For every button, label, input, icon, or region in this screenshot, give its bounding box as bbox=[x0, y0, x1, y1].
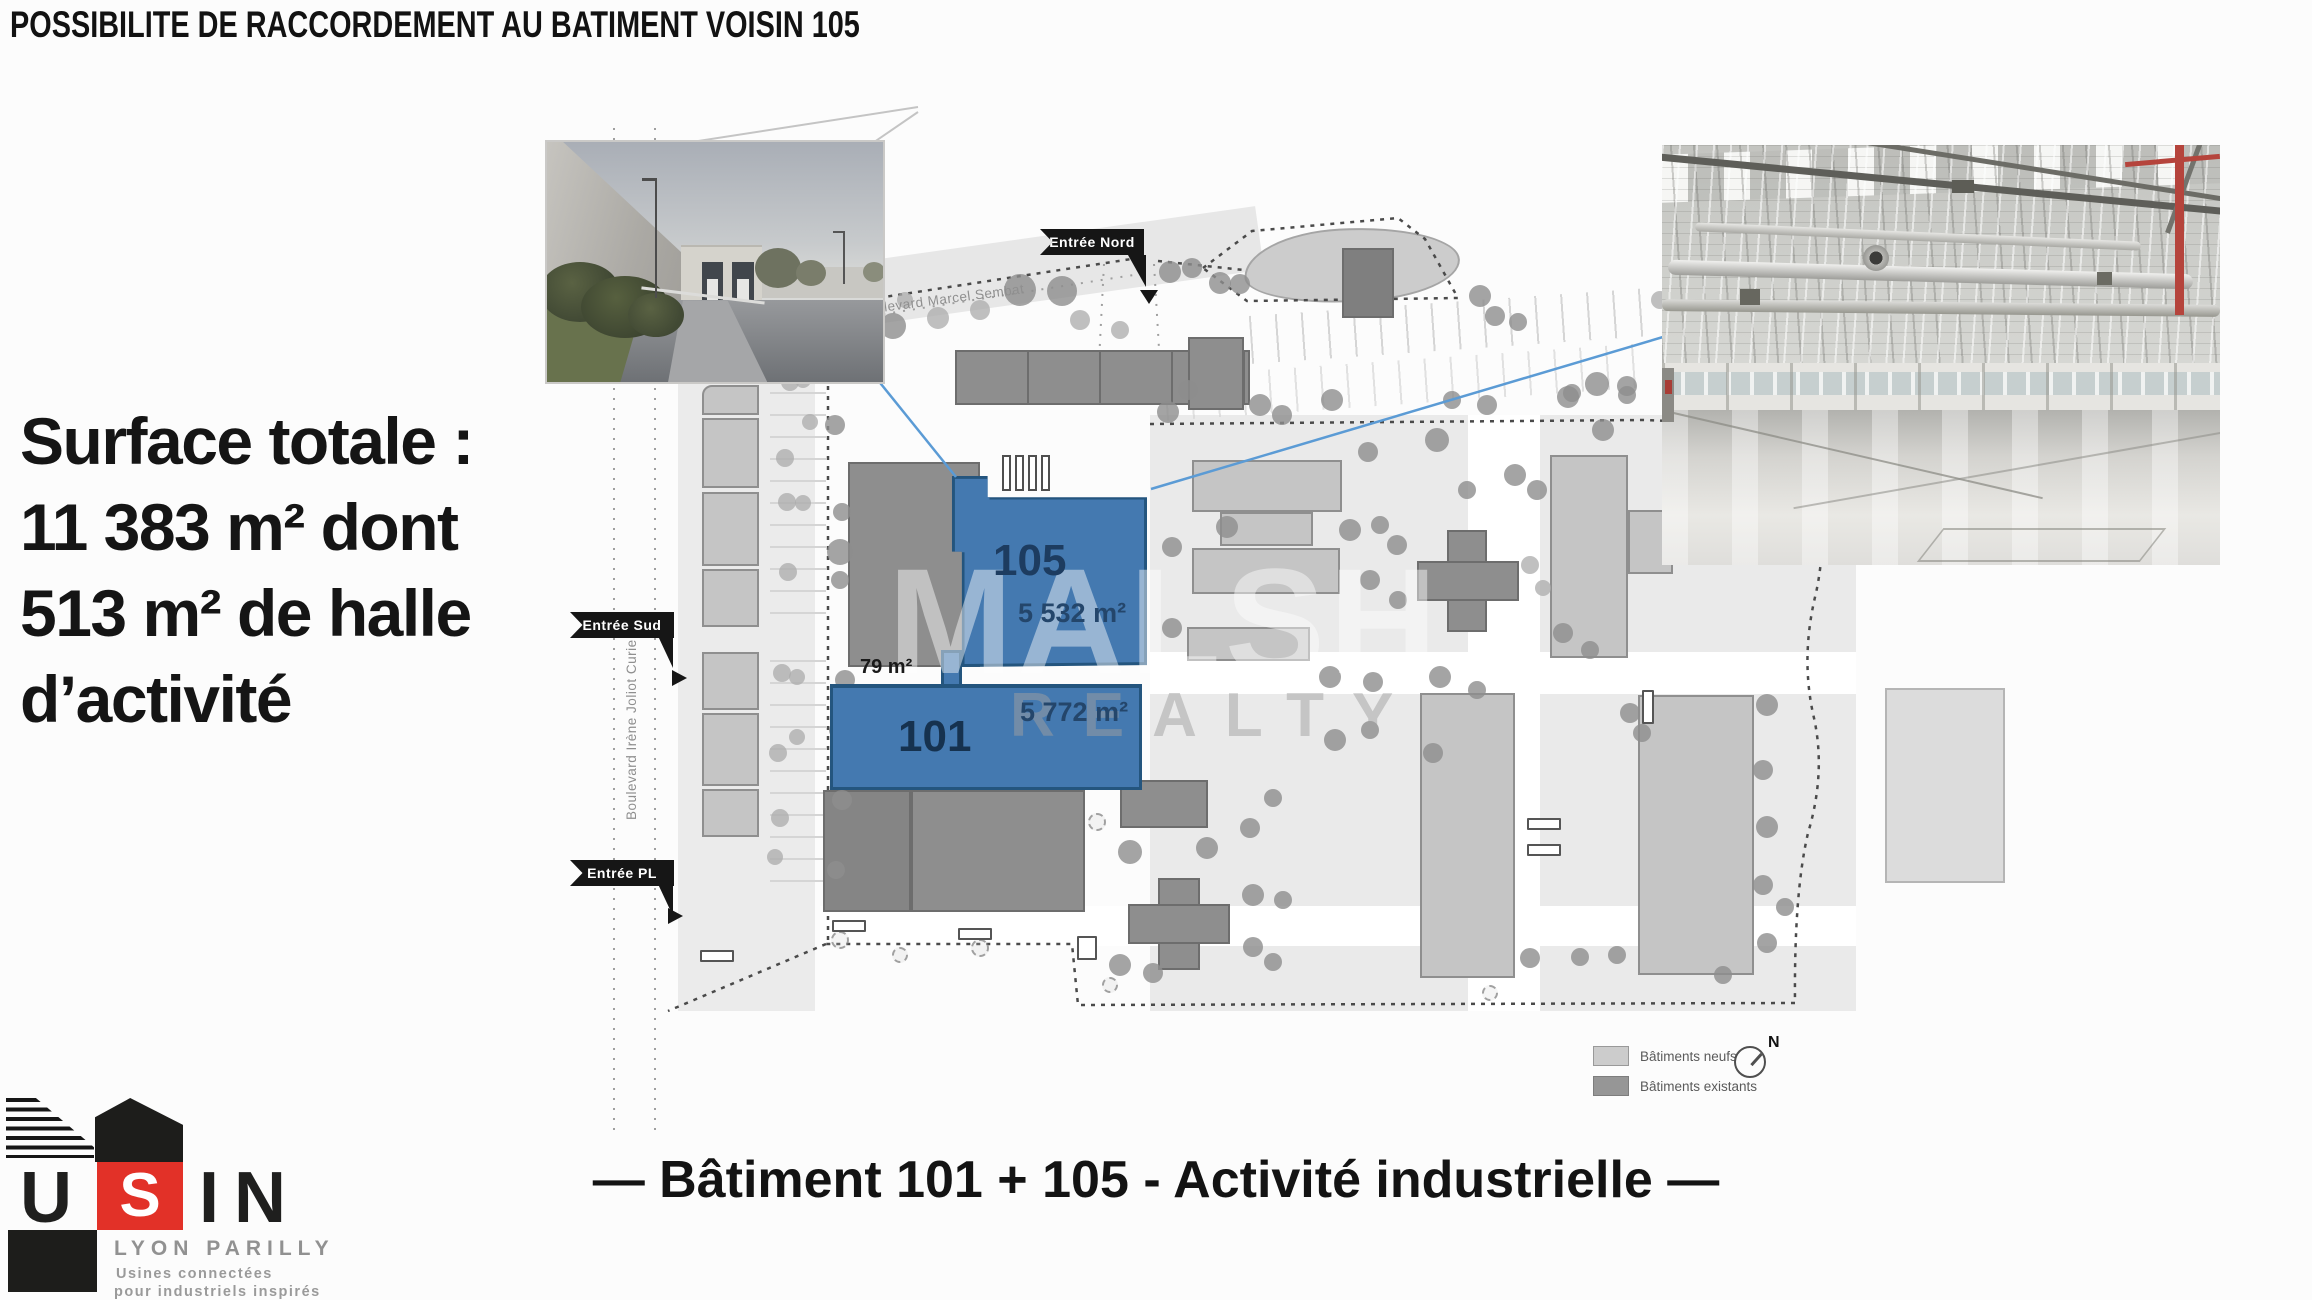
tree-icon bbox=[769, 744, 787, 762]
tree-icon bbox=[1249, 394, 1271, 416]
logo-tagline-2: pour industriels inspirés bbox=[114, 1284, 321, 1300]
photo-truss-pattern bbox=[1662, 145, 2220, 363]
tree-icon bbox=[1571, 948, 1589, 966]
tree-icon bbox=[779, 563, 797, 581]
photo-tree bbox=[796, 260, 826, 286]
logo-location: LYON PARILLY bbox=[114, 1237, 335, 1261]
tree-icon bbox=[831, 571, 849, 589]
surface-note-line: Surface totale : bbox=[20, 398, 473, 484]
tree-icon bbox=[1553, 623, 1573, 643]
tree-icon bbox=[1118, 840, 1142, 864]
tree-icon bbox=[767, 849, 783, 865]
entrance-south-arrow-icon bbox=[672, 670, 687, 686]
logo-letter-s: S bbox=[119, 1161, 160, 1230]
street-label-joliot-curie: Boulevard Irène Joliot Curie bbox=[624, 639, 639, 820]
photo-streetlight bbox=[843, 231, 845, 284]
tree-icon bbox=[1563, 384, 1581, 402]
tree-icon bbox=[1423, 743, 1443, 763]
logo-letter-i: I bbox=[199, 1164, 219, 1232]
photo-streetlight-arm bbox=[833, 231, 845, 233]
photo-bush bbox=[628, 293, 684, 337]
tree-icon bbox=[1756, 816, 1778, 838]
photo-floor bbox=[1662, 410, 2220, 565]
photo-streetlight-arm bbox=[642, 178, 657, 181]
loading-dock bbox=[1002, 455, 1011, 491]
tree-icon bbox=[1757, 933, 1777, 953]
tree-icon bbox=[1242, 884, 1264, 906]
logo-stripes-icon bbox=[6, 1098, 94, 1158]
logo-red-square: S bbox=[97, 1162, 183, 1230]
building-101-label: 101 bbox=[898, 712, 971, 762]
tree-icon bbox=[831, 931, 849, 949]
photo-ceiling bbox=[1662, 145, 2220, 363]
tree-icon bbox=[802, 414, 818, 430]
tree-icon bbox=[833, 503, 851, 521]
interior-photo bbox=[1662, 145, 2220, 565]
tree-icon bbox=[776, 449, 794, 467]
tree-icon bbox=[771, 809, 789, 827]
van-icon bbox=[1077, 936, 1097, 960]
tree-icon bbox=[1264, 789, 1282, 807]
logo-tagline-1: Usines connectées bbox=[116, 1266, 273, 1282]
tree-icon bbox=[1620, 703, 1640, 723]
tree-icon bbox=[1425, 428, 1449, 452]
tree-icon bbox=[1753, 875, 1773, 895]
slide: MALSH REALTY 105 5 532 m² 101 5 772 m² 7… bbox=[0, 0, 2312, 1300]
compass-north-label: N bbox=[1768, 1034, 1780, 1052]
tree-icon bbox=[1618, 386, 1636, 404]
legend-swatch-existing bbox=[1593, 1076, 1629, 1096]
photo-hvac-box bbox=[2097, 272, 2112, 285]
photo-wall-pillars bbox=[1662, 363, 2220, 409]
tree-icon bbox=[1485, 306, 1505, 326]
legend-label-new: Bâtiments neufs bbox=[1640, 1049, 1737, 1064]
tree-icon bbox=[1608, 946, 1626, 964]
tree-icon bbox=[773, 664, 791, 682]
tree-icon bbox=[1159, 261, 1181, 283]
tree-icon bbox=[827, 539, 853, 565]
logo-black-square bbox=[8, 1230, 97, 1292]
tree-icon bbox=[1633, 724, 1651, 742]
tree-icon bbox=[795, 495, 811, 511]
tree-icon bbox=[1458, 481, 1476, 499]
tree-icon bbox=[1111, 321, 1129, 339]
connector-area-label: 79 m² bbox=[860, 656, 912, 679]
truck-icon bbox=[832, 920, 866, 932]
entrance-pl-arrow-icon bbox=[668, 908, 683, 924]
entrance-pl-flag: Entrée PL bbox=[570, 860, 674, 886]
tree-icon bbox=[1509, 313, 1527, 331]
tree-icon bbox=[1088, 813, 1106, 831]
photo-floor-patch bbox=[1917, 528, 2167, 562]
logo-building-icon bbox=[95, 1098, 183, 1162]
loading-dock bbox=[1041, 455, 1050, 491]
tree-icon bbox=[1468, 681, 1486, 699]
tree-icon bbox=[789, 729, 805, 745]
tree-icon bbox=[825, 415, 845, 435]
photo-tree bbox=[755, 248, 801, 288]
tree-icon bbox=[1753, 760, 1773, 780]
tree-icon bbox=[1520, 948, 1540, 968]
tree-icon bbox=[1102, 977, 1118, 993]
legend-label-existing: Bâtiments existants bbox=[1640, 1079, 1757, 1094]
tree-icon bbox=[1521, 556, 1539, 574]
tree-icon bbox=[1109, 954, 1131, 976]
tree-icon bbox=[1243, 937, 1263, 957]
building-105-label: 105 bbox=[993, 536, 1066, 586]
building-105-area: 5 532 m² bbox=[1018, 598, 1126, 629]
tree-icon bbox=[1535, 580, 1551, 596]
compass-icon bbox=[1734, 1046, 1766, 1078]
tree-icon bbox=[1482, 985, 1498, 1001]
truck-icon bbox=[958, 928, 992, 940]
tree-icon bbox=[1157, 401, 1179, 423]
tree-icon bbox=[1047, 276, 1077, 306]
photo-hvac-box bbox=[1740, 289, 1760, 305]
tree-icon bbox=[827, 861, 845, 879]
tree-icon bbox=[778, 493, 796, 511]
photo-fire-extinguisher bbox=[1665, 380, 1672, 394]
tree-icon bbox=[1371, 516, 1389, 534]
logo-letter-u: U bbox=[20, 1164, 72, 1232]
tree-icon bbox=[1504, 464, 1526, 486]
surface-note: Surface totale : 11 383 m² dont 513 m² d… bbox=[20, 398, 473, 742]
tree-icon bbox=[1240, 818, 1260, 838]
tree-icon bbox=[1321, 389, 1343, 411]
tree-icon bbox=[1274, 891, 1292, 909]
tree-icon bbox=[1527, 480, 1547, 500]
surface-note-line: 11 383 m² dont bbox=[20, 484, 473, 570]
tree-icon bbox=[1443, 391, 1461, 409]
tree-icon bbox=[1143, 963, 1163, 983]
tree-icon bbox=[1230, 274, 1250, 294]
tree-icon bbox=[1264, 953, 1282, 971]
legend-swatch-new bbox=[1593, 1046, 1629, 1066]
tree-icon bbox=[1714, 966, 1732, 984]
truck-icon bbox=[1527, 844, 1561, 856]
tree-icon bbox=[1178, 380, 1198, 400]
entrance-south-flag: Entrée Sud bbox=[570, 612, 674, 638]
loading-dock bbox=[1015, 455, 1024, 491]
truck-icon bbox=[700, 950, 734, 962]
tree-icon bbox=[1196, 837, 1218, 859]
tree-icon bbox=[1776, 898, 1794, 916]
tree-icon bbox=[832, 790, 852, 810]
tree-icon bbox=[1469, 285, 1491, 307]
caption: — Bâtiment 101 + 105 - Activité industri… bbox=[0, 1150, 2312, 1210]
tree-icon bbox=[1358, 442, 1378, 462]
surface-note-line: d’activité bbox=[20, 656, 473, 742]
tree-icon bbox=[789, 669, 805, 685]
photo-tree bbox=[863, 262, 885, 282]
page-title: POSSIBILITE DE RACCORDEMENT AU BATIMENT … bbox=[10, 4, 860, 46]
tree-icon bbox=[970, 300, 990, 320]
entrance-north-flag: Entrée Nord bbox=[1040, 229, 1144, 255]
surface-note-line: 513 m² de halle bbox=[20, 570, 473, 656]
tree-icon bbox=[1272, 405, 1292, 425]
photo-pillar bbox=[1662, 368, 1674, 423]
logo-letter-n: N bbox=[234, 1164, 286, 1232]
tree-icon bbox=[1209, 272, 1231, 294]
tree-icon bbox=[1756, 694, 1778, 716]
usin-logo: U S I N LYON PARILLY Usines connectées p… bbox=[6, 1088, 326, 1300]
tree-icon bbox=[1581, 641, 1599, 659]
tree-icon bbox=[1592, 419, 1614, 441]
tree-icon bbox=[1070, 310, 1090, 330]
photo-hvac-box bbox=[1952, 180, 1974, 193]
tree-icon bbox=[927, 307, 949, 329]
entrance-north-arrow-icon bbox=[1140, 290, 1158, 304]
photo-streetlight bbox=[655, 178, 657, 298]
truck-icon bbox=[1642, 690, 1654, 724]
tree-icon bbox=[1182, 258, 1202, 278]
tree-icon bbox=[1585, 372, 1609, 396]
building-101-area: 5 772 m² bbox=[1020, 697, 1128, 728]
truck-icon bbox=[1527, 818, 1561, 830]
tree-icon bbox=[892, 947, 908, 963]
loading-dock bbox=[1028, 455, 1037, 491]
tree-icon bbox=[971, 939, 989, 957]
tree-icon bbox=[1477, 395, 1497, 415]
photo-red-pipe bbox=[2175, 145, 2184, 315]
exterior-photo bbox=[545, 140, 885, 384]
photo-back-wall bbox=[1662, 363, 2220, 409]
